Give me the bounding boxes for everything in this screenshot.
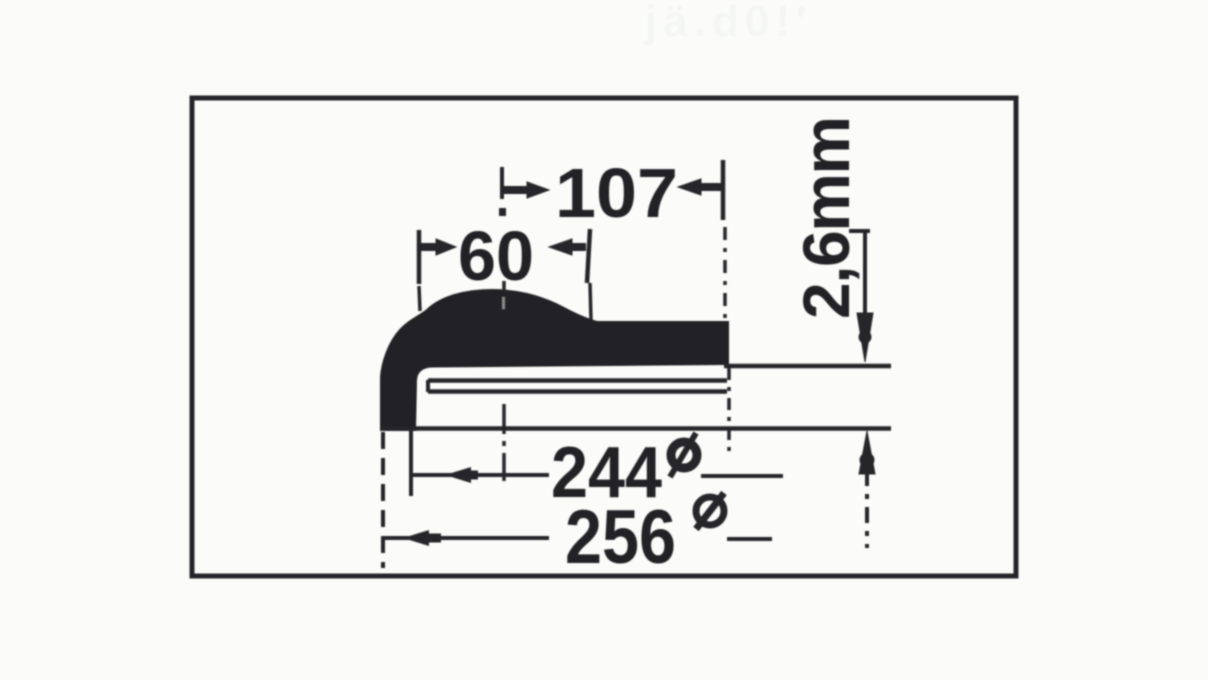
svg-text:256: 256 — [565, 495, 676, 580]
svg-text:60: 60 — [458, 217, 534, 295]
svg-text:107: 107 — [555, 154, 678, 232]
svg-text:jä.d0!′: jä.d0!′ — [644, 0, 812, 46]
svg-text:2,6mm: 2,6mm — [789, 117, 863, 319]
